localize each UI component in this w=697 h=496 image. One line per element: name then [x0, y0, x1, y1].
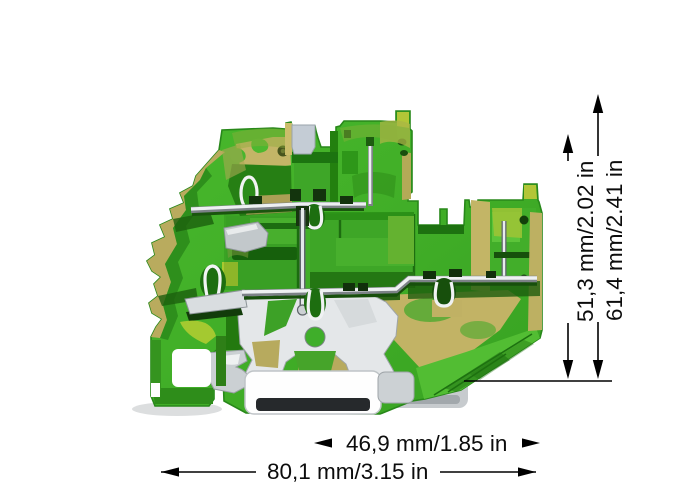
svg-text:61,4 mm/2.41 in: 61,4 mm/2.41 in — [602, 160, 627, 321]
svg-text:51,3 mm/2.02 in: 51,3 mm/2.02 in — [573, 161, 598, 322]
svg-text:80,1 mm/3.15 in: 80,1 mm/3.15 in — [267, 459, 428, 484]
svg-text:46,9 mm/1.85 in: 46,9 mm/1.85 in — [346, 431, 507, 456]
